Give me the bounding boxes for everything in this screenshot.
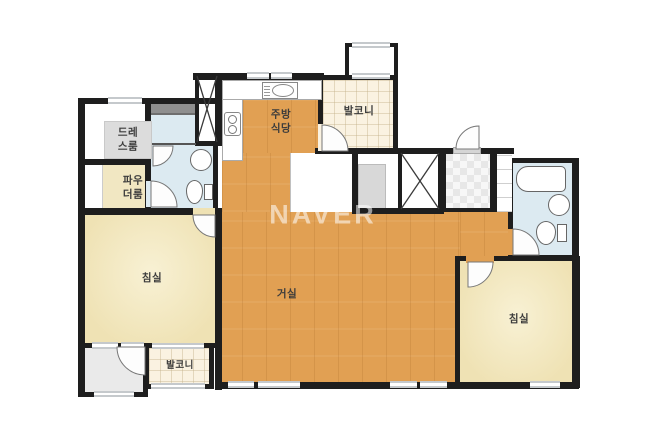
- room-utility: [80, 343, 148, 397]
- bathtub-icon: [516, 166, 566, 192]
- cooktop-burner-icon: [228, 115, 237, 124]
- window: [94, 391, 134, 397]
- window: [352, 73, 390, 79]
- window: [390, 381, 417, 388]
- floor-plan: 드레스룸 파우더룸 주방식당 발코니 거실 침실 침실 발코니 NAVER: [0, 0, 658, 438]
- window: [247, 72, 269, 79]
- window: [352, 42, 390, 48]
- window: [151, 383, 205, 389]
- wall: [78, 98, 84, 397]
- powder-closet-strip: [85, 165, 103, 209]
- entry-door-sill: [453, 147, 481, 154]
- room-label-dress: 드레스룸: [115, 126, 141, 153]
- door-gap: [193, 208, 215, 216]
- room-label-kitchen: 주방식당: [268, 108, 294, 135]
- sink-icon: [190, 149, 212, 171]
- kitchen-dishrack-icon: [264, 84, 270, 96]
- door-gap: [508, 229, 514, 255]
- entry-foyer: [442, 150, 494, 212]
- room-label-balcony-top: 발코니: [344, 105, 374, 119]
- window: [121, 342, 144, 349]
- window: [228, 381, 254, 388]
- wall: [195, 141, 225, 146]
- naver-watermark: NAVER: [269, 200, 377, 231]
- cooktop-burner-icon: [228, 125, 237, 134]
- entry-shoe-closet: [494, 152, 512, 212]
- hallway-floor: [460, 212, 514, 260]
- door-gap: [318, 124, 324, 151]
- room-living-floor: [218, 212, 464, 384]
- window: [420, 381, 447, 388]
- window: [108, 97, 142, 104]
- duct-shaft-left: [195, 73, 219, 145]
- wall: [480, 148, 514, 154]
- window: [271, 72, 292, 79]
- room-label-balcony-bottom: 발코니: [166, 360, 194, 372]
- room-label-bedroom-left: 침실: [142, 272, 162, 286]
- wall: [215, 208, 222, 390]
- door-gap: [146, 181, 152, 207]
- window: [152, 343, 204, 349]
- wall: [315, 148, 455, 154]
- window: [258, 381, 300, 388]
- room-label-living: 거실: [277, 288, 297, 302]
- door-gap: [466, 256, 494, 263]
- duct-shaft-entry: [398, 150, 442, 212]
- wall: [78, 208, 193, 214]
- bathroom-shelf: [151, 104, 195, 115]
- kitchen-sink-basin-icon: [272, 84, 294, 97]
- shower-partition: [151, 143, 196, 145]
- window: [92, 342, 118, 349]
- toilet-tank-icon: [557, 224, 567, 242]
- wall: [80, 160, 148, 164]
- room-label-bedroom-right: 침실: [509, 313, 529, 327]
- toilet-tank-icon: [204, 184, 213, 200]
- wall: [572, 158, 579, 389]
- sink-icon: [548, 194, 570, 216]
- room-label-powder: 파우더룸: [120, 174, 146, 201]
- window: [530, 381, 560, 388]
